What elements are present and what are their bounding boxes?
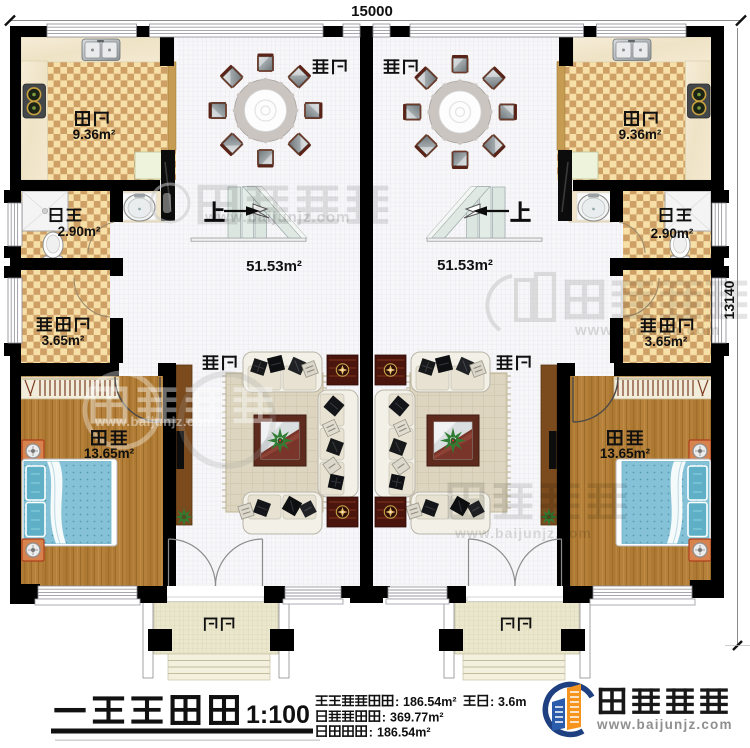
svg-text:2.90m²: 2.90m² <box>651 226 694 241</box>
svg-text:2.90m²: 2.90m² <box>58 224 101 239</box>
svg-text:186.54m²: 186.54m² <box>377 726 431 740</box>
svg-text:9.36m²: 9.36m² <box>619 127 662 142</box>
svg-text:51.53m²: 51.53m² <box>246 258 302 275</box>
svg-text::: : <box>369 725 373 740</box>
svg-text:www.baijunjz.com: www.baijunjz.com <box>454 525 592 541</box>
svg-text:15000: 15000 <box>351 3 393 20</box>
svg-text:3.6m: 3.6m <box>498 695 527 709</box>
svg-text:3.65m²: 3.65m² <box>42 333 85 348</box>
svg-text:13140: 13140 <box>721 280 737 319</box>
svg-text:369.77m²: 369.77m² <box>390 711 444 725</box>
svg-text:186.54m²: 186.54m² <box>403 695 457 709</box>
svg-text::: : <box>395 694 399 709</box>
svg-text:51.53m²: 51.53m² <box>437 257 493 274</box>
svg-text:13.65m²: 13.65m² <box>600 446 651 461</box>
svg-text:1:100: 1:100 <box>246 701 310 729</box>
svg-text:13.65m²: 13.65m² <box>84 446 135 461</box>
svg-text:www.baijunjz.com: www.baijunjz.com <box>596 717 733 732</box>
svg-text::: : <box>382 710 386 725</box>
svg-text:3.65m²: 3.65m² <box>645 334 688 349</box>
svg-text:9.36m²: 9.36m² <box>73 127 116 142</box>
svg-text:www.baijunjz.com: www.baijunjz.com <box>204 209 350 226</box>
svg-text::: : <box>490 694 494 709</box>
svg-text:www.baijunjz.com: www.baijunjz.com <box>94 414 215 429</box>
